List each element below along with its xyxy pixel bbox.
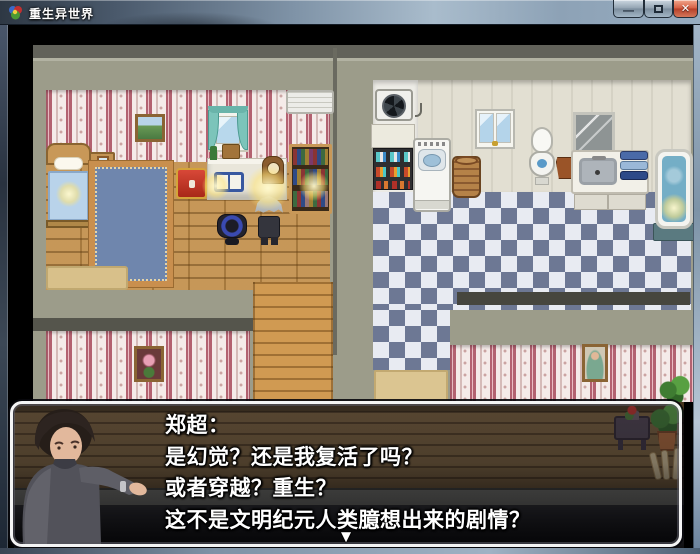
faucet <box>592 156 606 160</box>
toilet-water <box>537 159 547 168</box>
shelf-items-row <box>376 167 410 177</box>
desk-box <box>222 144 240 159</box>
close-button[interactable]: ✕ <box>673 0 698 18</box>
basket-lid <box>455 156 478 165</box>
washer-lid <box>418 149 446 171</box>
bathroom-window <box>475 109 515 149</box>
tile-corridor <box>373 310 450 370</box>
bed-footboard <box>46 220 91 228</box>
towel <box>620 161 648 170</box>
dialog-line: 或者穿越？重生？ <box>165 473 675 505</box>
chest-lock <box>189 180 195 188</box>
minimize-icon: — <box>623 6 634 16</box>
washer-base <box>415 200 449 209</box>
maximize-button[interactable] <box>644 0 673 18</box>
book-row <box>293 149 328 165</box>
dialog-speaker: 郑超： <box>165 410 675 442</box>
shelf-items-row <box>376 181 410 189</box>
shelf-cabinet <box>373 148 413 190</box>
window-border-bottom <box>0 548 700 554</box>
lamp-glow-bed <box>56 181 82 207</box>
game-window: 重生异世界 — ✕ <box>0 0 700 554</box>
lady-portrait <box>582 344 608 382</box>
sink-drawers <box>574 194 646 210</box>
app-icon[interactable] <box>7 4 24 21</box>
minimize-button[interactable]: — <box>613 0 644 18</box>
doormat <box>374 370 448 402</box>
window-pane <box>496 113 511 143</box>
fan-blades <box>382 94 406 118</box>
chair-seat <box>217 214 247 238</box>
ventilation-fan <box>375 89 413 121</box>
lamp-glow-desk <box>202 172 230 200</box>
chair-base <box>225 238 239 245</box>
toilet <box>527 127 557 187</box>
mountain-painting <box>135 114 165 142</box>
lower-wall-shadow <box>33 318 253 331</box>
flower-painting <box>134 346 164 382</box>
wall-top-shadow <box>33 45 693 58</box>
bedside-mat <box>46 266 128 290</box>
hero-leg <box>271 237 278 245</box>
bed <box>46 143 91 228</box>
continue-arrow-icon: ▼ <box>338 528 355 545</box>
towel <box>620 151 648 160</box>
dialog-line: 这不是文明纪元人类臆想出来的剧情？ <box>165 505 675 537</box>
lamp-glow-shelf <box>299 171 329 201</box>
air-conditioner <box>286 90 334 114</box>
rug-center <box>95 167 167 281</box>
window-title: 重生异世界 <box>29 5 94 22</box>
dialog-box[interactable]: 郑超： 是幻觉？还是我复活了吗？ 或者穿越？重生？ 这不是文明纪元人类臆想出来的… <box>10 401 682 547</box>
titlebar[interactable]: 重生异世界 — ✕ <box>0 0 700 25</box>
mirror <box>573 112 615 154</box>
close-icon: ✕ <box>681 2 690 15</box>
curtain-valance <box>208 106 248 113</box>
toilet-lid <box>531 127 553 153</box>
wall-top-highlight <box>33 58 693 61</box>
maximize-icon <box>654 5 663 13</box>
lamp-glow-bathtub <box>660 194 688 222</box>
sink-drain <box>595 170 600 175</box>
window-pane <box>479 113 494 143</box>
hero-leg <box>261 237 268 245</box>
washer-window <box>423 154 441 167</box>
character-portrait <box>17 406 149 544</box>
laundry-basket <box>452 156 481 198</box>
toilet-bowl <box>529 151 555 177</box>
sink-basin <box>579 158 617 185</box>
game-viewport[interactable]: 郑超： 是幻觉？还是我复活了吗？ 或者穿越？重生？ 这不是文明纪元人类臆想出来的… <box>8 25 693 548</box>
bed-pillow <box>54 157 83 170</box>
lower-right-wallpaper <box>450 345 693 402</box>
book-page-right <box>230 175 241 189</box>
shelf-items-row <box>376 152 410 162</box>
portrait-man <box>17 406 149 544</box>
window-latch <box>492 141 498 146</box>
dialog-text: 郑超： 是幻觉？还是我复活了吗？ 或者穿越？重生？ 这不是文明纪元人类臆想出来的… <box>165 410 675 536</box>
towel <box>620 171 648 180</box>
toilet-base <box>535 177 549 185</box>
office-chair <box>217 212 247 246</box>
dialog-line: 是幻觉？还是我复活了吗？ <box>165 442 675 474</box>
window-border-left <box>0 25 8 554</box>
bathtub <box>655 149 693 229</box>
desk-bottle <box>210 146 217 160</box>
shelf-top <box>371 124 415 148</box>
rpg-game-icon <box>7 4 24 21</box>
hallway-wood <box>253 282 333 402</box>
lamp-glow-center <box>246 166 290 210</box>
sink-counter <box>571 150 649 194</box>
washing-machine <box>413 138 451 212</box>
hero-body <box>258 216 280 238</box>
storage-shelf <box>371 124 415 190</box>
potted-plant-corner <box>658 372 692 402</box>
curtain-left <box>208 110 219 150</box>
window-border-right <box>693 25 700 554</box>
washer-controls <box>418 142 446 146</box>
wall-recess <box>457 292 690 305</box>
